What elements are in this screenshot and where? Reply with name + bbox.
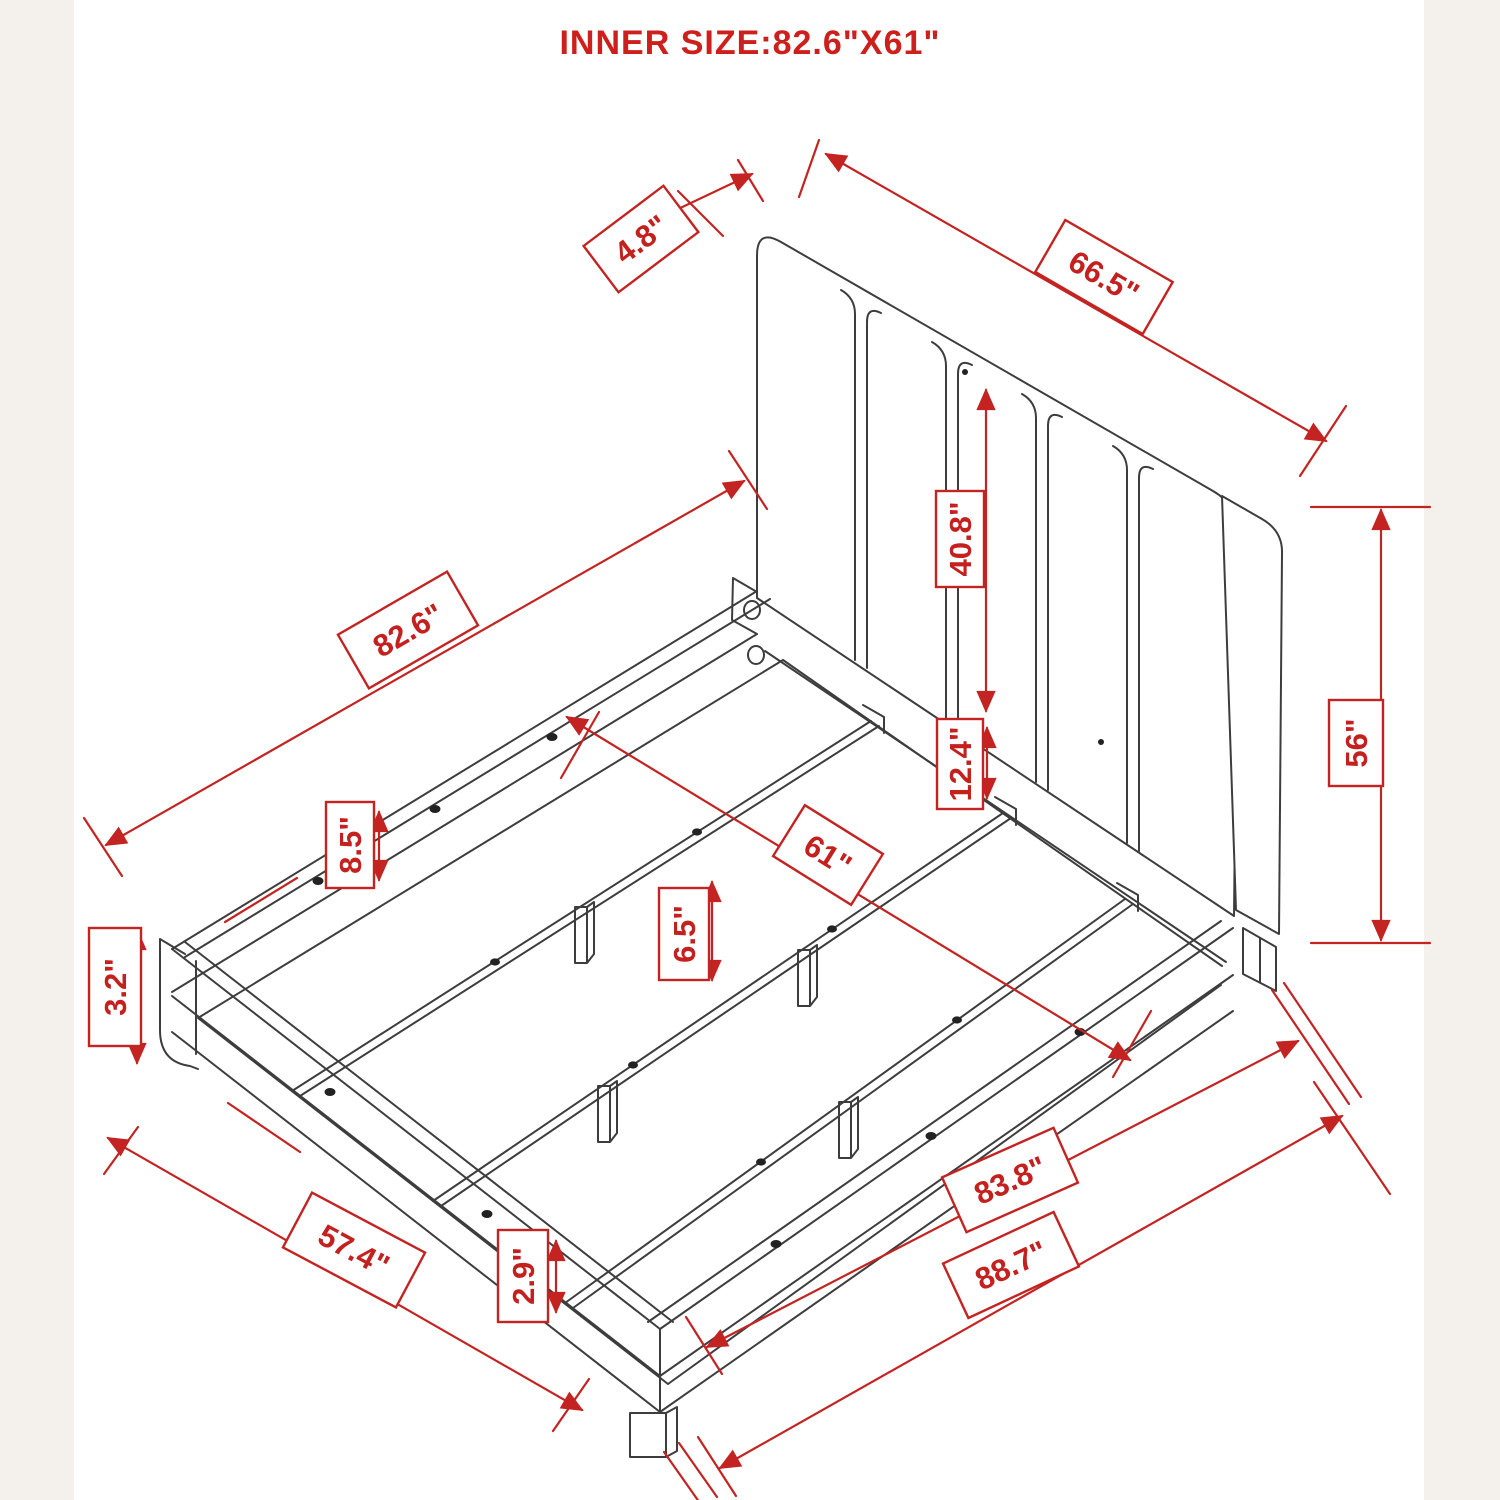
dim-headboard-height: 56" xyxy=(1329,700,1383,786)
dim-side-rail-height: 8.5" xyxy=(326,802,374,888)
front-right-leg xyxy=(630,1407,677,1457)
slat-rails xyxy=(292,705,1138,1308)
dim-inner-length: 82.6" xyxy=(338,572,478,689)
technical-drawing-page: INNER SIZE:82.6"X61" xyxy=(0,0,1500,1500)
svg-text:2.9": 2.9" xyxy=(506,1247,541,1305)
svg-text:12.4": 12.4" xyxy=(943,726,978,801)
dim-headboard-panel-height: 40.8" xyxy=(936,491,984,587)
dim-foot-leg-height: 2.9" xyxy=(498,1230,548,1322)
svg-text:40.8": 40.8" xyxy=(943,501,978,576)
dim-center-leg-height: 6.5" xyxy=(659,888,709,980)
dim-outer-length: 83.8" xyxy=(942,1128,1078,1232)
dim-foot-width: 57.4" xyxy=(283,1193,425,1308)
dim-base-height: 3.2" xyxy=(89,928,141,1046)
svg-text:8.5": 8.5" xyxy=(333,816,368,874)
svg-text:3.2": 3.2" xyxy=(98,958,133,1016)
bed-assembly-diagram: 4.8" 66.5" 40.8" 12.4" 82.6" 8.5" xyxy=(0,0,1500,1500)
dim-headboard-lower-height: 12.4" xyxy=(937,719,983,809)
svg-text:56": 56" xyxy=(1339,718,1374,767)
dim-inner-width: 61" xyxy=(773,805,883,905)
dim-headboard-width: 66.5" xyxy=(1035,220,1172,334)
svg-text:6.5": 6.5" xyxy=(667,905,702,963)
front-left-foot xyxy=(160,939,198,1069)
dim-headboard-thickness: 4.8" xyxy=(584,186,699,293)
